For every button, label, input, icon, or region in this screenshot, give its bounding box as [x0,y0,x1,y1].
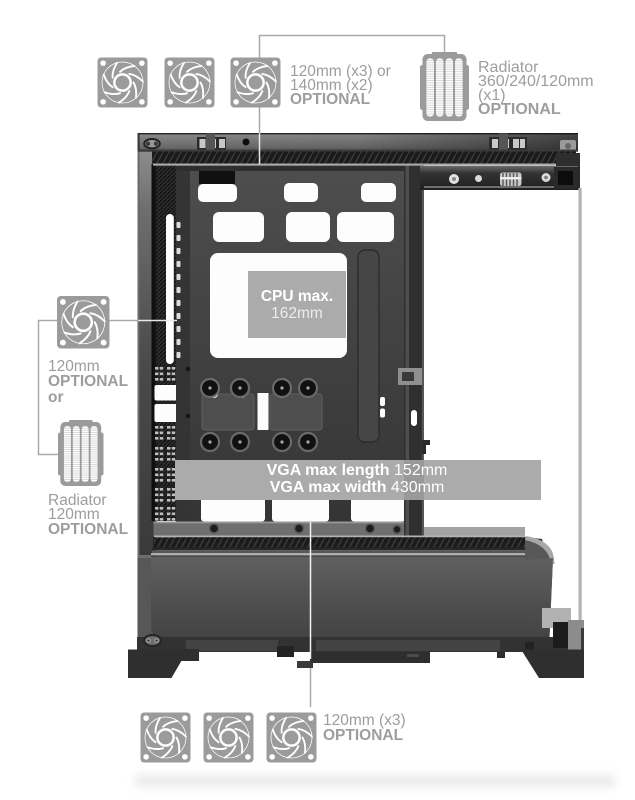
svg-text:OPTIONAL: OPTIONAL [48,521,128,538]
svg-text:162mm: 162mm [271,305,323,322]
svg-text:VGA max length 152mm: VGA max length 152mm [267,462,448,479]
svg-text:OPTIONAL: OPTIONAL [323,727,403,744]
svg-text:or: or [48,389,64,406]
svg-text:OPTIONAL: OPTIONAL [478,101,561,118]
svg-text:OPTIONAL: OPTIONAL [290,91,370,108]
svg-text:VGA max width 430mm: VGA max width 430mm [270,479,445,496]
svg-text:OPTIONAL: OPTIONAL [48,373,128,390]
svg-text:CPU max.: CPU max. [261,288,333,305]
